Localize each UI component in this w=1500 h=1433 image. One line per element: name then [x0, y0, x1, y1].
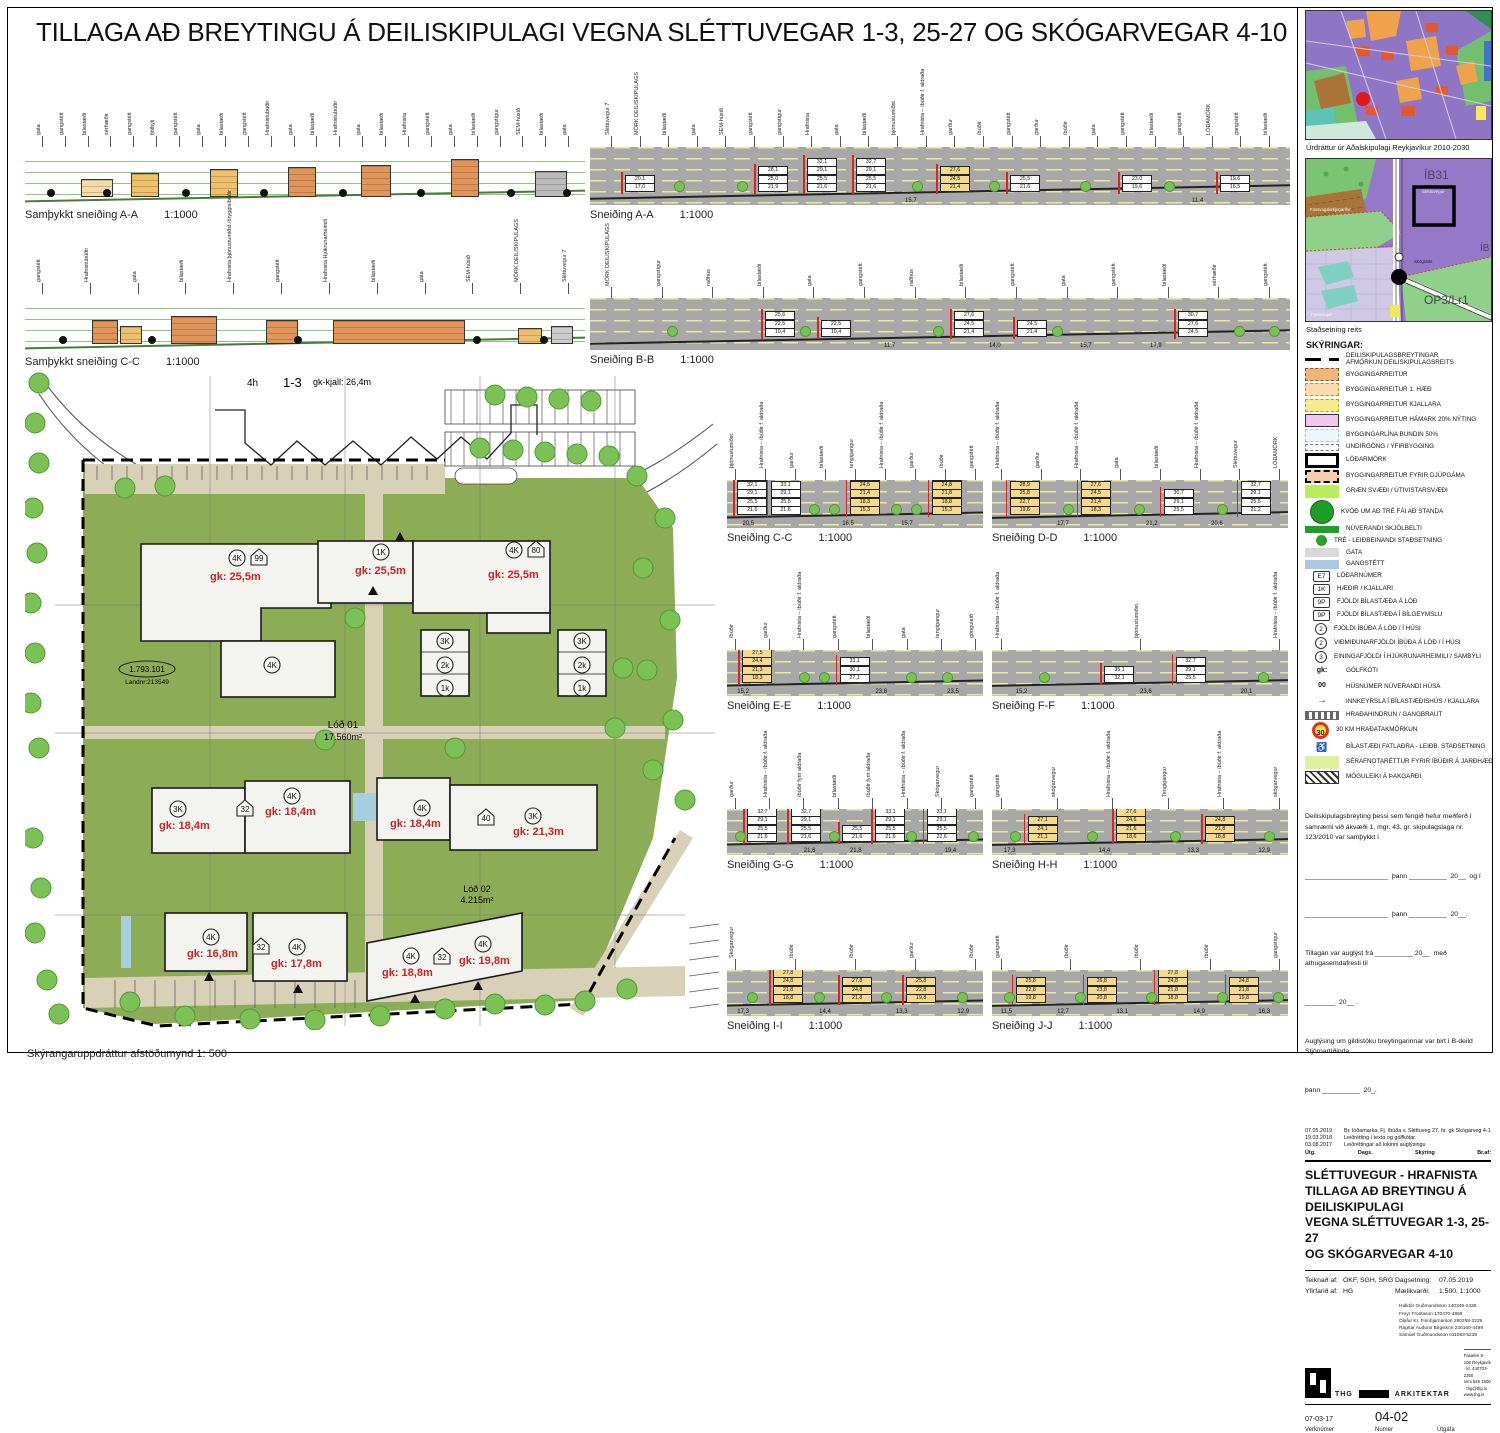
- floor-elevation: 19,6: [1010, 506, 1040, 515]
- section-drawing: [25, 294, 585, 352]
- revision-date: 19.03.2018: [1305, 1135, 1339, 1141]
- circle-swatch-icon: 3: [1315, 651, 1327, 663]
- tree-icon: [517, 387, 537, 407]
- floor-elevation: 19,8: [1229, 994, 1259, 1003]
- label-leader-line: [248, 136, 249, 147]
- section-axis-label: gata: [807, 275, 813, 286]
- section-caption: Sneiðing C-C1:1000: [727, 528, 983, 544]
- legend-item: LÓÐARMÖRK: [1305, 453, 1491, 468]
- label-leader-line: [1067, 287, 1068, 298]
- tree-icon: [800, 326, 811, 337]
- section-building: 25,822,819,8: [906, 978, 936, 1003]
- road-swatch-icon: [1305, 548, 1339, 557]
- section-axis-label: Hrafnista – íbúðir f. aldraða: [995, 402, 1001, 468]
- approval-blank: ______________________ þann __________ 2…: [1305, 872, 1491, 883]
- tree-icon: [175, 1006, 195, 1026]
- ground-elevation: 17,7: [1057, 521, 1069, 527]
- section-axis-label: bílastæði: [662, 113, 668, 135]
- section-axis-label: gangstétt: [969, 445, 975, 468]
- legend-item: 3EININGAFJÖLDI Í HJÚKRUNARHEIMILI / SAMB…: [1305, 651, 1491, 663]
- tree-icon: [485, 994, 505, 1014]
- dimension-tick: [923, 809, 925, 844]
- legend-label: GRÆN SVÆÐI / ÚTIVISTARSVÆÐI: [1346, 488, 1448, 495]
- floor-elevation: 24,5: [1178, 328, 1208, 337]
- label-leader-line: [975, 959, 976, 970]
- section-label-row: Skógarveguríbúðiríbúðirgarðuríbúðir: [727, 894, 983, 970]
- legend-heading: SKÝRINGAR:: [1306, 340, 1491, 350]
- stadsetning-caption: Staðsetning reits: [1306, 325, 1491, 334]
- section-axis-label: Hrafnista – íbúðir f. aldraða: [995, 572, 1001, 638]
- ground-elevation: 15,7: [905, 198, 917, 204]
- tree-icon: [814, 992, 825, 1003]
- section-building: 30,727,624,5: [1178, 312, 1208, 337]
- section-building: 32,729,125,5: [1176, 658, 1206, 683]
- label-leader-line: [872, 639, 873, 650]
- label-leader-line: [1057, 798, 1058, 809]
- architect-names: Halldór Guðmundsson 140349-2439Freyr Fro…: [1399, 1303, 1491, 1339]
- dimension-tick: [928, 480, 930, 517]
- section-drawing: 32,729,125,521,632,729,125,521,625,521,6…: [727, 809, 983, 855]
- section-axis-label: gangstétt: [1120, 112, 1126, 135]
- tree-icon: [182, 189, 190, 197]
- dimension-tick: [1006, 480, 1008, 517]
- dimension-tick: [838, 975, 840, 1005]
- logo-bar: [1359, 1390, 1389, 1398]
- tree-icon: [663, 710, 683, 730]
- label-leader-line: [640, 136, 641, 147]
- floor-elevation: 21,9: [758, 183, 788, 192]
- section-axis-label: Hrafnista – íbúðir f. aldraða: [1074, 402, 1080, 468]
- section-axis-label: Hrafnistubúðir: [84, 248, 90, 282]
- gk-elevation-label: gk: 25,5m: [210, 571, 261, 583]
- section-caption: Sneiðing D-D1:1000: [992, 528, 1288, 544]
- label-leader-line: [1279, 959, 1280, 970]
- label-leader-line: [1168, 287, 1169, 298]
- firm-name: THG: [1335, 1391, 1353, 1398]
- right-column: Úrdráttur úr Aðalskipulagi Reykjavíkur 2…: [1305, 10, 1491, 1433]
- gk-elevation-label: gk: 25,5m: [488, 569, 539, 581]
- section-axis-label: Hrafnista – íbúðir f. aldraða: [920, 69, 926, 135]
- legend-label: FJÖLDI ÍBÚÐA Á LÓÐ / Í HÚSI: [1334, 626, 1421, 633]
- tree-icon: [581, 391, 601, 411]
- label-leader-line: [769, 639, 770, 650]
- section-axis-label: Hrafnista – íbúðir f. aldraða: [759, 402, 765, 468]
- label-leader-line: [769, 798, 770, 809]
- legend-item: GRÆN SVÆÐI / ÚTIVISTARSVÆÐI: [1305, 485, 1491, 498]
- floor-elevation: 18,8: [1158, 994, 1188, 1003]
- section-building: 33,129,125,522,6: [927, 809, 957, 842]
- mark-text: 80: [532, 546, 541, 555]
- section-building: [131, 173, 159, 197]
- tree-icon: [627, 466, 647, 486]
- label-leader-line: [795, 469, 796, 480]
- ground-elevation: 23,5: [947, 689, 959, 695]
- section-axis-label: gangstétt: [173, 112, 179, 135]
- checked-value: HG: [1343, 1288, 1353, 1295]
- label-leader-line: [611, 136, 612, 147]
- label-leader-line: [156, 136, 157, 147]
- mark-text: 2k: [441, 661, 450, 670]
- section-axis-label: gangstétt: [832, 615, 838, 638]
- architect-name: Freyr Frostason 170470-4869: [1399, 1311, 1491, 1318]
- section-drawing: 27,124,121,127,624,621,618,624,821,818,8…: [992, 809, 1288, 855]
- tree-icon: [305, 1010, 325, 1030]
- section-axis-label: Hrafnista – íbúðir f. aldraða: [1194, 402, 1200, 468]
- section-axis-label: bílastæði: [1162, 264, 1168, 286]
- ground-elevation: 11,7: [884, 343, 895, 349]
- approval-blank: ________ 20__ .: [1305, 998, 1491, 1009]
- label-leader-line: [1140, 959, 1141, 970]
- label-leader-line: [1279, 798, 1280, 809]
- section-building: 19,616,5: [1220, 175, 1250, 192]
- section-axis-label: bílastæði: [866, 616, 872, 638]
- section-axis-label: Hrafnistubúðir: [265, 101, 271, 135]
- section-caption: Sneiðing E-E1:1000: [727, 696, 983, 712]
- label-leader-line: [783, 136, 784, 147]
- section-axis-label: gangstétt.: [1263, 262, 1269, 286]
- section-axis-label: gangstétt: [1006, 112, 1012, 135]
- section-scale: 1:1000: [1081, 700, 1115, 712]
- gk-elevation-label: gk: 17,8m: [271, 958, 322, 970]
- section-building: 35,132,1: [1104, 666, 1134, 683]
- architect-name: Halldór Guðmundsson 140349-2439: [1399, 1303, 1491, 1310]
- label-leader-line: [868, 136, 869, 147]
- section-axis-label: garður: [909, 942, 915, 958]
- tree-icon: [674, 181, 685, 192]
- legend-label: EININGAFJÖLDI Í HJÚKRUNARHEIMILI / SAMBÝ…: [1334, 654, 1481, 661]
- label-4h: 4h: [247, 378, 258, 389]
- section-caption-text: Sneiðing I-I: [727, 1020, 783, 1032]
- lot1-name: Lóð 01: [328, 719, 359, 731]
- section-building: [266, 320, 298, 344]
- section-drawing: [25, 147, 585, 205]
- project-name: SLÉTTUVEGUR - HRAFNISTA: [1305, 1168, 1491, 1184]
- section-bb: MÖRK DEILISKIPULAGSgangstígurraðhúsbílas…: [590, 232, 1290, 366]
- dimension-tick: [902, 975, 904, 1005]
- tree-icon: [1146, 992, 1157, 1003]
- section-caption: Sneiðing J-J1:1000: [992, 1016, 1288, 1032]
- ground-elevation: 15,7: [901, 521, 913, 527]
- floor-elevation: 18,3: [742, 674, 772, 683]
- floor-elevation: 21,6: [842, 833, 872, 842]
- gk-elevation-label: gk: 16,8m: [187, 948, 238, 960]
- thg-logo: THG ARKITEKTAR: [1305, 1368, 1450, 1398]
- dashline-swatch-icon: [1305, 358, 1339, 361]
- section-axis-label: Hrafnista – íbúðir f. aldraða: [797, 572, 803, 638]
- mark-text: 3K: [528, 812, 538, 821]
- section-building: 27,624,521,418,3: [1081, 481, 1111, 515]
- label-kirkjugardur: Fossvogskirkjugarður: [1310, 207, 1351, 212]
- section-axis-label: íbúðir: [969, 944, 975, 958]
- legend-item: DEILISKIPULAGSBREYTINGARAFMÖRKUN DEILISK…: [1305, 353, 1491, 366]
- section-axis-label: MÖRK DEILISKIPULAGS: [605, 223, 611, 286]
- roof-swatch-icon: [1305, 771, 1339, 784]
- label-leader-line: [408, 136, 409, 147]
- section-axis-label: gangstígur: [494, 109, 500, 135]
- section-axis-label: íbúðir fyrir aldraða: [797, 753, 803, 797]
- stall-line: [689, 940, 719, 944]
- ground-elevation: 17,3: [1004, 848, 1016, 854]
- legend-label: HÆÐIR / KJALLARI: [1337, 586, 1393, 593]
- tree-icon: [605, 718, 625, 738]
- section-axis-label: LÓÐAMÖRK: [1273, 437, 1279, 468]
- dimension-tick: [1174, 309, 1176, 339]
- floor-elevation: 16,5: [1220, 183, 1250, 192]
- legend-label: GATA: [1346, 550, 1362, 557]
- ground-elevation: 16,3: [1258, 1009, 1270, 1015]
- section-drawing: 27,824,821,818,827,824,821,825,822,819,8…: [727, 970, 983, 1016]
- section-building: 33,129,125,521,6: [875, 809, 905, 842]
- tree-icon: [345, 608, 365, 628]
- tree-icon: [25, 828, 43, 848]
- floor-elevation: 21,6: [875, 833, 905, 842]
- label-leader-line: [754, 136, 755, 147]
- label-leader-line: [545, 136, 546, 147]
- tree-icon: [912, 181, 923, 192]
- drawing-meta: Teiknað af: Yfirfarið af: OKF, SGH, SRG …: [1305, 1276, 1491, 1298]
- mark-text: 4K: [267, 661, 277, 670]
- section-axis-label: íbúðir: [849, 944, 855, 958]
- section-label-row: gangstéttHrafnistubúðirgatabílastæðiHraf…: [25, 228, 585, 294]
- section-axis-label: gata: [1114, 457, 1120, 468]
- section-building: [361, 165, 391, 197]
- tree-icon: [470, 438, 490, 458]
- tree-icon: [25, 643, 45, 663]
- section-building: [171, 316, 217, 344]
- section-scale: 1:1000: [1079, 1020, 1113, 1032]
- label-leader-line: [897, 136, 898, 147]
- section-axis-label: skógarvegur: [1051, 767, 1057, 797]
- green-swatch-icon: [1305, 485, 1339, 498]
- shelter-swatch-icon: [1305, 526, 1339, 533]
- approval-text: Deiliskipulagsbreyting þessi sem fengið …: [1305, 812, 1491, 844]
- section-axis-label: gangstétt: [242, 112, 248, 135]
- tree-icon: [737, 181, 748, 192]
- stall-line: [689, 988, 719, 992]
- section-axis-label: gata: [1091, 124, 1097, 135]
- label-leader-line: [185, 283, 186, 294]
- section-sam-cc: gangstéttHrafnistubúðirgatabílastæðiHraf…: [25, 228, 585, 368]
- section-axis-label: gata: [562, 124, 568, 135]
- mark-text: 4K: [232, 554, 242, 563]
- ground-elevation: 14,4: [1099, 848, 1111, 854]
- section-building: 27,824,821,8: [842, 978, 872, 1003]
- section-axis-label: gangstétt.: [1111, 262, 1117, 286]
- legend-item: BYGGINGARREITUR FYRIR DJÚPGÁMA: [1305, 470, 1491, 483]
- tree-icon: [25, 923, 45, 943]
- tree-icon: [1170, 831, 1181, 842]
- section-axis-label: gata: [834, 124, 840, 135]
- section-building: [210, 169, 238, 197]
- floor-elevation: 21,4: [940, 183, 970, 192]
- legend-item: KVÖÐ UM AÐ TRÉ FÁI AÐ STANDA: [1305, 500, 1491, 524]
- section-axis-label: gata: [36, 124, 42, 135]
- label-leader-line: [838, 798, 839, 809]
- revision-date: 07.05.2019: [1305, 1128, 1339, 1134]
- section-axis-label: gata: [196, 124, 202, 135]
- tree-icon: [507, 189, 515, 197]
- label-leader-line: [42, 283, 43, 294]
- label-leader-line: [385, 136, 386, 147]
- section-caption: Sneiðing H-H1:1000: [992, 855, 1288, 871]
- label-leader-line: [179, 136, 180, 147]
- sheet-number-labels: Verknúmer Númer Útgáfa: [1305, 1427, 1491, 1433]
- stall-line: [689, 972, 719, 976]
- tree-icon: [1269, 326, 1280, 337]
- project-line: TILLAGA AÐ BREYTINGU Á DEILISKIPULAGI: [1305, 1184, 1491, 1215]
- section-drawing: 25,822,819,826,823,820,827,824,821,818,8…: [992, 970, 1288, 1016]
- lot2-area: 4.215m²: [460, 895, 493, 905]
- section-axis-label: gata: [691, 124, 697, 135]
- gk-elevation-label: gk: 18,4m: [265, 806, 316, 818]
- legend-label: DEILISKIPULAGSBREYTINGARAFMÖRKUN DEILISK…: [1346, 353, 1454, 366]
- label-leader-line: [90, 283, 91, 294]
- page-title: TILLAGA AÐ BREYTINGU Á DEILISKIPULAGI VE…: [36, 17, 1287, 48]
- section-building: [333, 320, 465, 344]
- legend-label: UNDIRGÖNG / YFIRBYGGING: [1346, 444, 1434, 451]
- floor-elevation: 21,8: [842, 994, 872, 1003]
- section-label-row: Hrafnista – íbúðir f. aldraðagarðurHrafn…: [992, 392, 1288, 480]
- label-leader-line: [975, 469, 976, 480]
- ground-elevation: 20,5: [742, 521, 754, 527]
- label-leader-line: [225, 136, 226, 147]
- section-building: 27,624,521,418,315,3: [850, 480, 880, 515]
- tree-icon: [37, 970, 57, 990]
- ground-elevation: 14,9: [1193, 1009, 1205, 1015]
- section-axis-label: MÖRK DEILISKIPULAGS: [514, 219, 520, 282]
- legend-item: BYGGINGARREITUR 1. HÆÐ: [1305, 383, 1491, 396]
- floor-elevation: 21,2: [1241, 506, 1271, 515]
- bluedash-swatch-icon: [1305, 429, 1339, 442]
- mark-text: 3K: [173, 805, 183, 814]
- dimension-tick: [1201, 814, 1203, 844]
- dimension-tick: [803, 155, 805, 194]
- tree-icon: [120, 992, 140, 1012]
- dimension-tick: [852, 155, 854, 194]
- legend-label: BYGGINGARREITUR FYRIR DJÚPGÁMA: [1346, 473, 1465, 480]
- label-leader-line: [825, 469, 826, 480]
- label-leader-line: [803, 639, 804, 650]
- tree-icon: [25, 413, 45, 433]
- section-axis-label: bílastæði: [219, 113, 225, 135]
- section-scale: 1:1000: [820, 859, 854, 871]
- section-axis-label: þjónustumiðst.: [891, 100, 897, 135]
- section-scale: 1:1000: [817, 700, 851, 712]
- label-leader-line: [294, 136, 295, 147]
- label-leader-line: [477, 136, 478, 147]
- section-caption: Sneiðing I-I1:1000: [727, 1016, 983, 1032]
- section-axis-label: Hrafnista – íbúðir f. aldraða: [1273, 572, 1279, 638]
- tree-icon: [1134, 504, 1145, 515]
- section-axis-label: gangstétt: [995, 935, 1001, 958]
- floor-elevation: 20,8: [1087, 994, 1117, 1003]
- legend-label: SÉRAFNOTARÉTTUR FYRIR ÍBÚÐIR Á JARÐHÆÐ: [1346, 759, 1493, 766]
- parking-strip: [85, 464, 445, 494]
- legend-item: GATA: [1305, 548, 1491, 557]
- architect-name: Samúel Guðmundsson 011083-5239: [1399, 1332, 1491, 1339]
- floor-elevation: 15,3: [932, 506, 962, 515]
- section-label-row: gatagangstéttbílastæðisérhæðirgangstéttf…: [25, 85, 585, 147]
- floor-elevation: 25,5: [1176, 674, 1206, 683]
- label-leader-line: [838, 639, 839, 650]
- section-caption: Samþykkt sneiðing C-C1:1000: [25, 352, 585, 368]
- section-building: [451, 159, 479, 197]
- section-axis-label: Hrafnista – íbúðir f. aldraða: [1106, 731, 1112, 797]
- firm-row: THG ARKITEKTAR Faxafen 9 · 108 Reykjavík…: [1305, 1349, 1491, 1398]
- label-leader-line: [1126, 136, 1127, 147]
- section-axis-label: íbúðir: [1063, 121, 1069, 135]
- privgreen-swatch-icon: [1305, 756, 1339, 769]
- section-axis-label: íbúðir: [1064, 944, 1070, 958]
- legend-label: FJÖLDI BÍLASTÆÐA Í BÍLGEYMSLU: [1337, 612, 1442, 619]
- label-leader-line: [1001, 959, 1002, 970]
- section-axis-label: Hrafnista: [402, 113, 408, 135]
- section-label-row: Sléttuvegur 7MÖRK DEILISKIPULAGSbílastæð…: [590, 85, 1290, 147]
- section-axis-label: fjölbýli: [150, 120, 156, 135]
- label-gk-kjall: gk-kjall: 26,4m: [313, 377, 371, 387]
- hump-swatch-icon: [1305, 711, 1339, 720]
- mark-text: 2k: [578, 661, 587, 670]
- section-axis-label: íbúðir: [1204, 944, 1210, 958]
- floor-elevation: 21,1: [1028, 833, 1058, 842]
- section-axis-label: sérhæðir: [104, 113, 110, 135]
- ground-elevation: 23,6: [1140, 689, 1152, 695]
- section-axis-label: bílastæði: [82, 113, 88, 135]
- scale-label: Mælikvarði:: [1395, 1288, 1430, 1295]
- tree-icon: [942, 672, 953, 683]
- label-leader-line: [735, 798, 736, 809]
- legend-label: MÖGULEIKI Á ÞAKGARÐI: [1346, 774, 1421, 781]
- label-leader-line: [697, 136, 698, 147]
- mark-text: 4K: [478, 940, 488, 949]
- legend-item: →INNKEYRSLA Í BÍLASTÆÐISHÚS / KJALLARA: [1305, 695, 1491, 708]
- plain-swatch-icon: gk:: [1305, 665, 1339, 678]
- legend-item: TRÉ - LEIÐBEINANDI STAÐSETNING: [1305, 535, 1491, 546]
- floor-elevation: 21,6: [856, 183, 886, 192]
- section-axis-label: þjónustumiðst.: [1134, 603, 1140, 638]
- parking-island: [455, 468, 517, 484]
- floor-elevation: 19,8: [906, 994, 936, 1003]
- label-leader-line: [765, 469, 766, 480]
- section-caption-text: Samþykkt sneiðing C-C: [25, 356, 140, 368]
- ground-elevation: 17,3: [737, 1009, 749, 1015]
- floor-elevation: 21,6: [807, 183, 837, 192]
- dimension-tick: [621, 172, 623, 194]
- section-axis-label: íbúðir fyrir aldraða: [866, 753, 872, 797]
- tree-icon: [59, 336, 67, 344]
- section-axis-label: Hrafnista – íbúðir f. aldraða: [763, 731, 769, 797]
- section-axis-label: bílastæði: [862, 113, 868, 135]
- section-building: 27,824,821,818,8: [1158, 970, 1188, 1003]
- tree-icon: [613, 658, 633, 678]
- dimension-tick: [817, 317, 819, 339]
- section-axis-label: gata: [1061, 275, 1067, 286]
- tree-icon: [667, 326, 678, 337]
- dimension-tick: [1237, 480, 1239, 517]
- revision-row: 19.03.2018Leiðrétting í texta og gólfkót…: [1305, 1135, 1491, 1141]
- parking-row: [445, 390, 635, 424]
- tree-icon: [294, 336, 302, 344]
- circle-swatch-icon: 2: [1315, 623, 1327, 635]
- box-swatch-icon: 9P: [1313, 597, 1330, 608]
- section-axis-label: bílastæði: [1154, 446, 1160, 468]
- label-leader-line: [362, 136, 363, 147]
- label-leader-line: [668, 136, 669, 147]
- legend-item: GANGSTÉTT: [1305, 560, 1491, 569]
- ground-elevation: 19,4: [945, 848, 957, 854]
- section-axis-label: íbúðir: [1134, 944, 1140, 958]
- legend-label: GANGSTÉTT: [1346, 561, 1384, 568]
